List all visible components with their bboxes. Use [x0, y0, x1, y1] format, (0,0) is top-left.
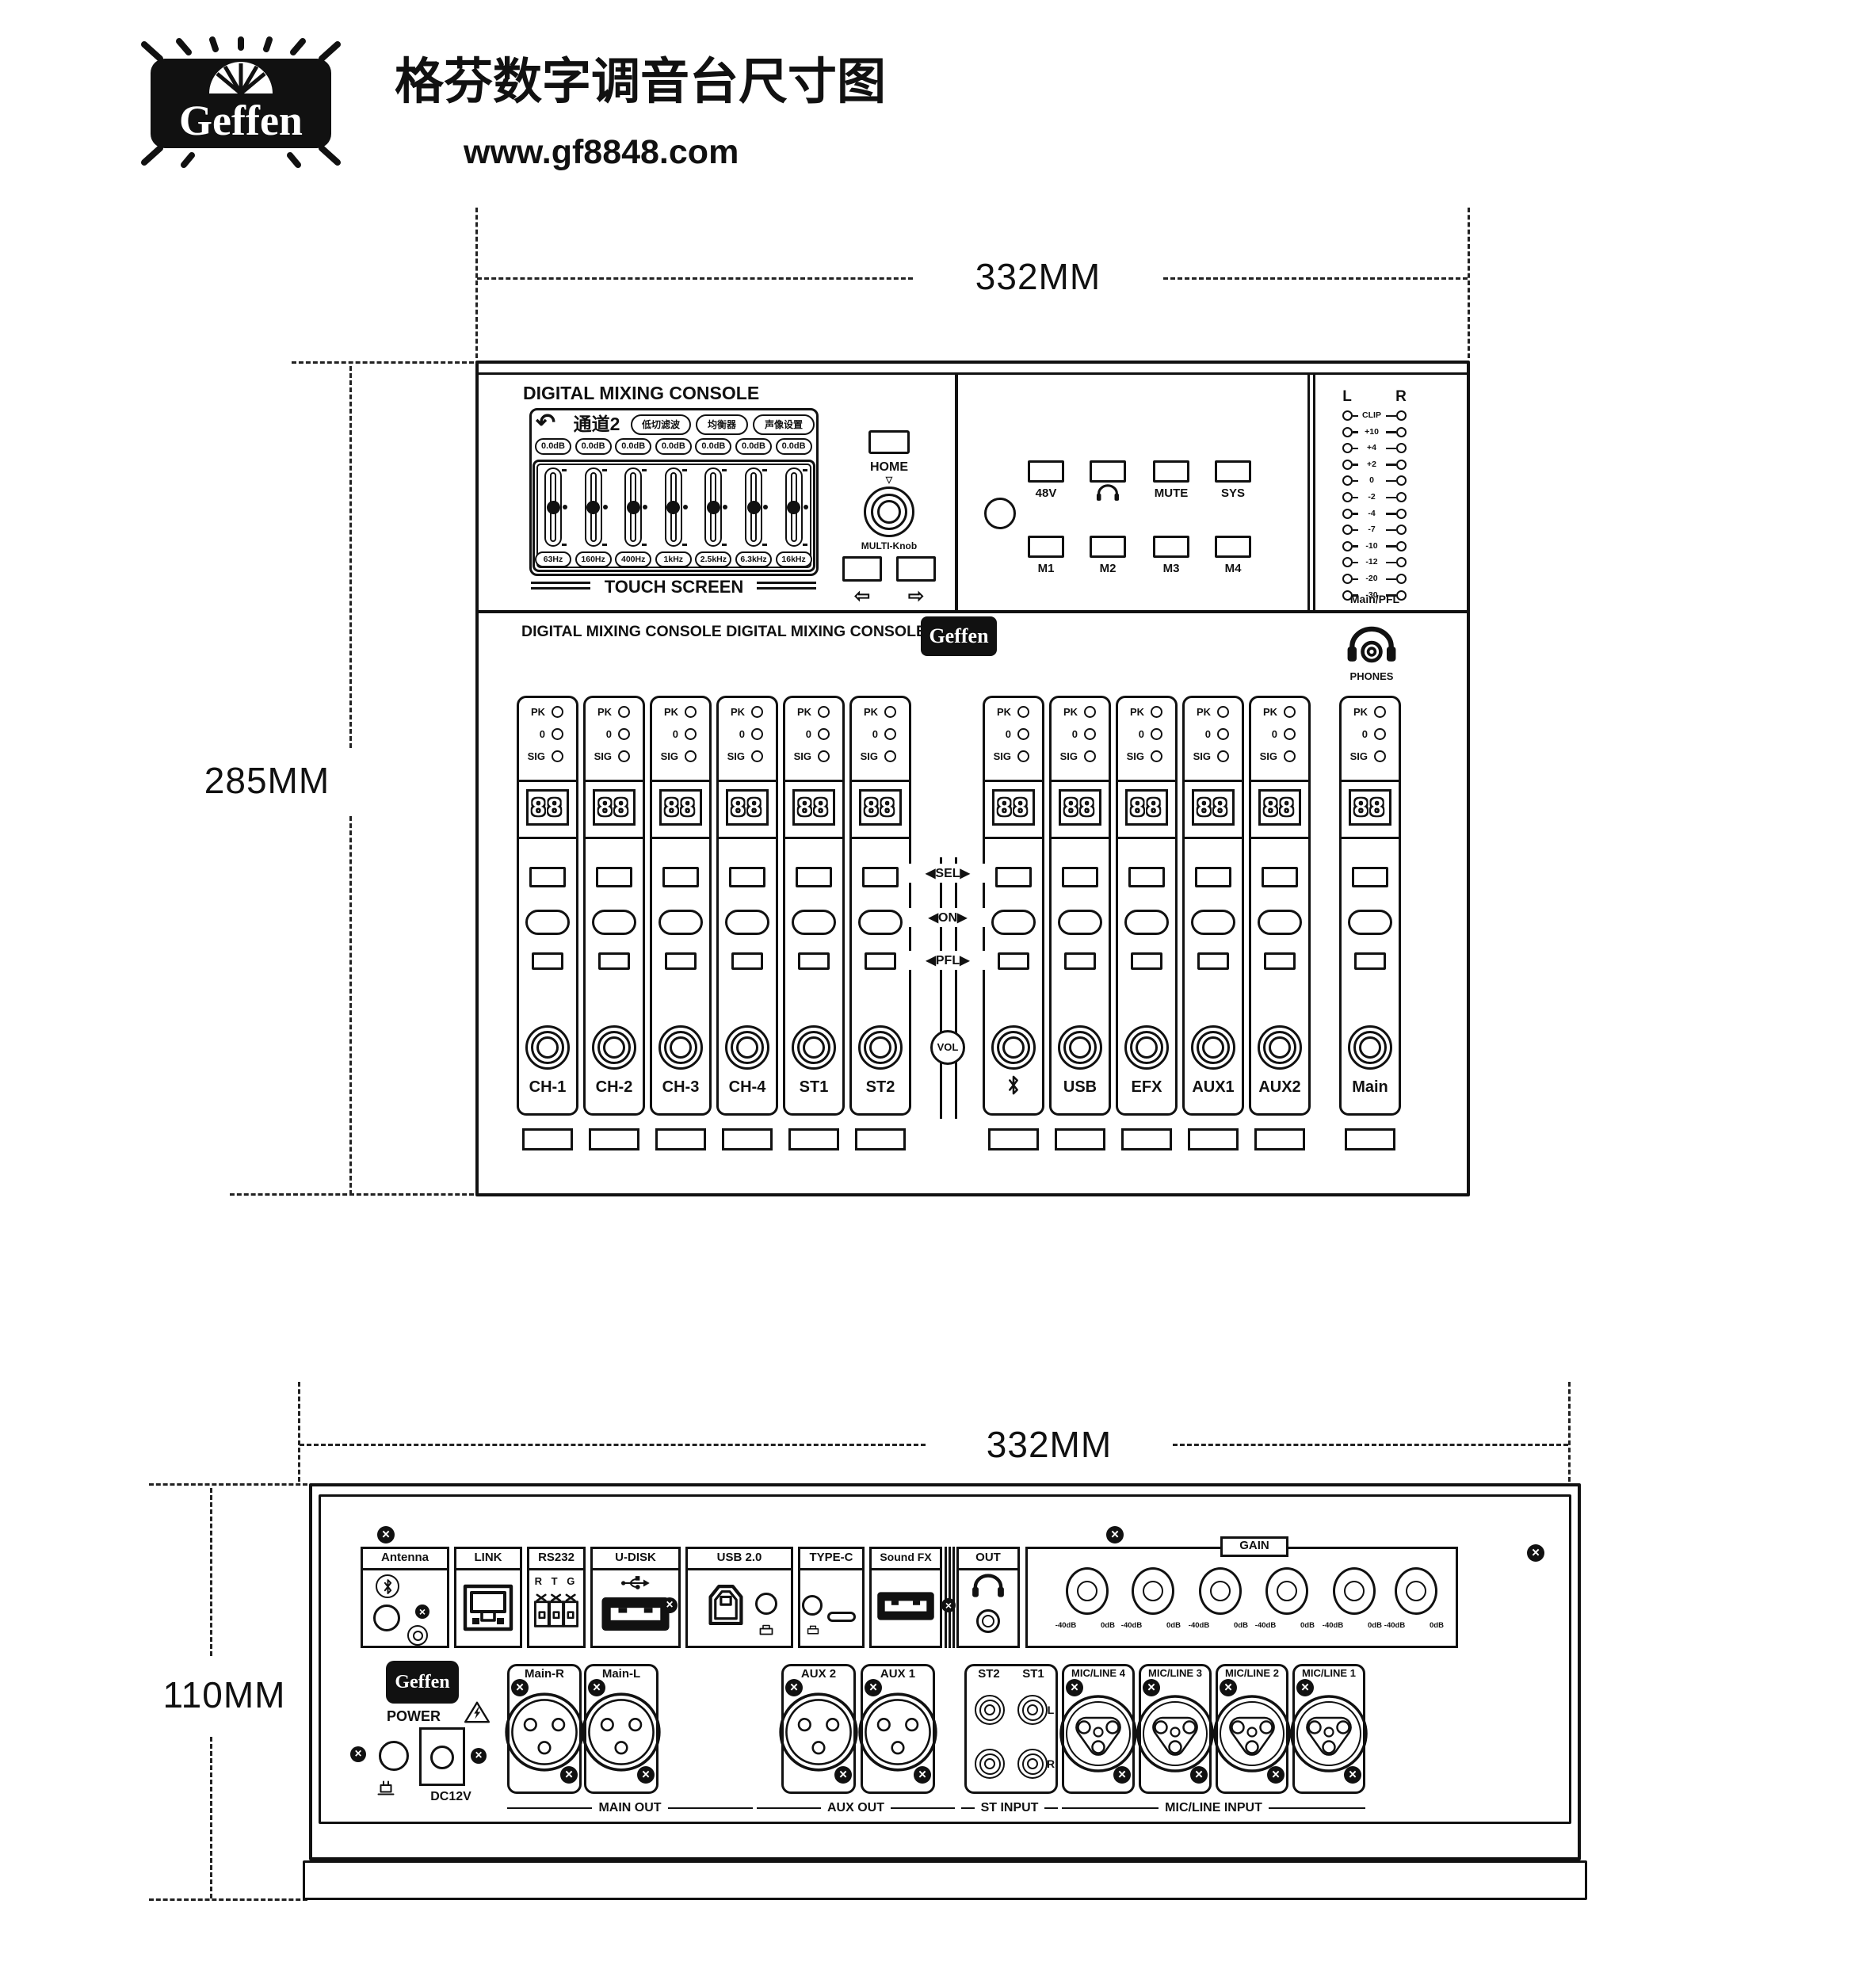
rear-bottom-flange — [303, 1860, 1587, 1900]
multi-knob-label: MULTI-Knob — [849, 540, 929, 551]
eq-freq-badge: 2.5kHz — [695, 551, 731, 567]
fader-slot[interactable] — [1055, 1128, 1105, 1150]
group-line — [668, 1807, 753, 1809]
eq-freq-badge: 160Hz — [575, 551, 612, 567]
vol-knob[interactable] — [736, 1036, 758, 1059]
multi-knob[interactable] — [877, 500, 901, 524]
channel-display-value: 88 — [859, 793, 902, 822]
group-line — [507, 1807, 592, 1809]
led-indicator — [751, 750, 763, 762]
dimension-line — [1163, 277, 1468, 280]
gain-min-label: -40dB — [1380, 1621, 1410, 1630]
function-button-label: M4 — [1209, 562, 1257, 576]
channel-label: AUX1 — [1182, 1078, 1244, 1097]
led-indicator — [685, 706, 697, 718]
screen-tab[interactable]: 声像设置 — [753, 414, 815, 435]
vol-knob[interactable] — [1359, 1036, 1381, 1059]
channel-label: AUX2 — [1249, 1078, 1311, 1097]
sel-button[interactable] — [1062, 867, 1098, 887]
bluetooth-icon — [383, 1578, 393, 1595]
power-button[interactable] — [379, 1741, 409, 1771]
st-jack — [1027, 1704, 1038, 1715]
pfl-button[interactable] — [865, 952, 896, 970]
led-indicator — [751, 728, 763, 740]
line — [1251, 780, 1308, 782]
gain-max-label: 0dB — [1422, 1621, 1451, 1630]
line — [682, 469, 687, 471]
screw-icon: × — [511, 1679, 529, 1696]
channel-label: CH-4 — [716, 1078, 778, 1097]
meter-right-label: R — [1393, 388, 1409, 406]
geffen-logo-small: Geffen — [386, 1661, 459, 1704]
fader-slot[interactable] — [988, 1128, 1039, 1150]
function-button-label: M1 — [1022, 562, 1070, 576]
led-indicator — [1017, 728, 1029, 740]
line — [762, 469, 767, 471]
divider-label-sel: ◀SEL▶ — [908, 864, 987, 883]
line — [479, 372, 1467, 375]
pfl-button[interactable] — [998, 952, 1029, 970]
channel-display-value: 88 — [1125, 793, 1168, 822]
function-button-label: 48V — [1022, 487, 1070, 501]
channel-display-value: 88 — [1258, 793, 1301, 822]
on-button[interactable] — [1058, 910, 1102, 935]
antenna-port — [413, 1631, 423, 1641]
vol-knob[interactable] — [603, 1036, 625, 1059]
line — [562, 469, 567, 471]
dimension-line — [300, 1444, 926, 1446]
on-button[interactable] — [1258, 910, 1302, 935]
screw-icon: × — [1106, 1526, 1124, 1543]
led-indicator — [751, 706, 763, 718]
eq-slider-dot — [804, 505, 808, 509]
meter-led — [1342, 557, 1353, 567]
led-indicator — [1017, 750, 1029, 762]
line — [1386, 431, 1396, 433]
on-button[interactable] — [792, 910, 836, 935]
gain-min-label: -40dB — [1184, 1621, 1214, 1630]
function-button[interactable] — [1090, 460, 1126, 483]
fader-slot[interactable] — [655, 1128, 706, 1150]
line — [1342, 780, 1399, 782]
eq-slider-handle[interactable] — [547, 501, 560, 514]
gain-label: GAIN — [1220, 1539, 1288, 1553]
eq-slider-dot — [683, 505, 688, 509]
line — [562, 544, 567, 546]
sel-button[interactable] — [862, 867, 899, 887]
eq-slider-dot — [563, 505, 567, 509]
line — [719, 837, 776, 839]
eq-freq-badge: 400Hz — [615, 551, 651, 567]
sel-button[interactable] — [662, 867, 699, 887]
function-button[interactable] — [1153, 536, 1189, 558]
io-group-label: MIC/LINE INPUT — [1062, 1799, 1365, 1818]
group-label-text: MAIN OUT — [598, 1801, 661, 1815]
meter-led — [1342, 410, 1353, 421]
gain-min-label: -40dB — [1250, 1621, 1281, 1630]
meter-led — [1342, 525, 1353, 535]
channel-display-value: 88 — [726, 793, 769, 822]
fader-slot[interactable] — [855, 1128, 906, 1150]
sel-button[interactable] — [729, 867, 765, 887]
gain-knob[interactable] — [1077, 1581, 1097, 1601]
gain-min-label: -40dB — [1117, 1621, 1147, 1630]
pfl-button[interactable] — [1197, 952, 1229, 970]
vol-knob[interactable] — [803, 1036, 825, 1059]
led-indicator — [1151, 728, 1162, 740]
fader-slot[interactable] — [1121, 1128, 1172, 1150]
pfl-button[interactable] — [665, 952, 697, 970]
eq-freq-badge: 63Hz — [535, 551, 571, 567]
dim-top-width: 332MM — [919, 255, 1157, 298]
port-section-label: LINK — [454, 1547, 522, 1570]
headphone-icon — [1342, 626, 1401, 667]
device-icon — [807, 1624, 819, 1634]
led-label: SIG — [1250, 750, 1277, 763]
gain-knob[interactable] — [1344, 1581, 1365, 1601]
led-label: 0 — [651, 728, 678, 741]
led-indicator — [1084, 750, 1096, 762]
led-indicator — [818, 706, 830, 718]
sel-button[interactable] — [529, 867, 566, 887]
usb-icon — [619, 1575, 652, 1591]
antenna-jack — [373, 1605, 400, 1631]
meter-led — [1396, 574, 1407, 584]
screw-icon: × — [1527, 1544, 1544, 1562]
pfl-button[interactable] — [532, 952, 563, 970]
line — [1386, 578, 1396, 581]
port-section-label: USB 2.0 — [685, 1547, 793, 1570]
dimension-line — [1468, 208, 1470, 358]
screw-icon: × — [834, 1766, 852, 1784]
vol-knob[interactable] — [1202, 1036, 1224, 1059]
channel-display-value: 88 — [1192, 793, 1235, 822]
dimension-line — [477, 277, 913, 280]
led-label: 0 — [585, 728, 612, 741]
vol-knob[interactable] — [1002, 1036, 1025, 1059]
eq-gain-badge: 0.0dB — [735, 438, 772, 455]
terminal-block — [533, 1591, 579, 1631]
line — [955, 372, 958, 610]
function-button-label: M2 — [1084, 562, 1132, 576]
group-line — [891, 1807, 955, 1809]
screw-icon: × — [415, 1605, 429, 1619]
eq-slider-handle[interactable] — [787, 501, 800, 514]
dimension-line — [230, 1193, 474, 1196]
led-label: 0 — [718, 728, 745, 741]
vol-knob[interactable] — [670, 1036, 692, 1059]
screw-icon: × — [865, 1679, 882, 1696]
sel-button[interactable] — [995, 867, 1032, 887]
vol-knob[interactable] — [1069, 1036, 1091, 1059]
screw-icon: × — [1143, 1679, 1160, 1696]
screw-icon: × — [662, 1597, 678, 1613]
led-indicator — [1284, 706, 1296, 718]
xlr-connector — [503, 1691, 586, 1773]
meter-led — [1396, 541, 1407, 551]
mic-line-label: MIC/LINE 4 — [1062, 1667, 1135, 1680]
on-button[interactable] — [1348, 910, 1392, 935]
screen-tab[interactable]: 低切滤波 — [631, 414, 691, 435]
nav-right-button[interactable] — [896, 556, 936, 582]
sel-button[interactable] — [596, 867, 632, 887]
gain-knob[interactable] — [1143, 1581, 1163, 1601]
led-label: PK — [651, 706, 678, 719]
port-section-label: RS232 — [527, 1547, 586, 1570]
touch-screen-caption-line — [757, 582, 816, 590]
line — [602, 469, 607, 471]
gain-knob[interactable] — [1406, 1581, 1426, 1601]
dimension-line — [210, 1488, 212, 1656]
pfl-button[interactable] — [1264, 952, 1296, 970]
function-button-label: MUTE — [1147, 487, 1195, 501]
led-indicator — [1217, 750, 1229, 762]
eq-slider-handle[interactable] — [707, 501, 720, 514]
on-button[interactable] — [725, 910, 769, 935]
combo-connector — [1059, 1694, 1138, 1773]
section-title: DIGITAL MIXING CONSOLE — [523, 383, 856, 405]
led-indicator — [1151, 706, 1162, 718]
meter-scale-label: +2 — [1357, 460, 1386, 470]
led-label: SIG — [585, 750, 612, 763]
screen-tab[interactable]: 均衡器 — [696, 414, 748, 435]
line — [945, 1547, 947, 1648]
led-indicator — [552, 706, 563, 718]
eq-gain-badge: 0.0dB — [535, 438, 571, 455]
screw-icon: × — [1066, 1679, 1083, 1696]
line — [1386, 448, 1396, 450]
led-indicator — [618, 750, 630, 762]
dimension-line — [349, 816, 352, 1195]
pfl-button[interactable] — [1131, 952, 1162, 970]
led-label: SIG — [784, 750, 811, 763]
pfl-button[interactable] — [731, 952, 763, 970]
dimension-line — [298, 1382, 300, 1482]
eq-slider-handle[interactable] — [747, 501, 761, 514]
meter-scale-label: CLIP — [1357, 410, 1386, 421]
usb-a-port — [876, 1588, 935, 1624]
geffen-logo-small: Geffen — [921, 616, 997, 656]
io-group-label: AUX OUT — [757, 1799, 955, 1818]
dc-jack-hole — [430, 1746, 454, 1769]
dimension-diagram-page: Geffen 格芬数字调音台尺寸图 www.gf8848.com 332MM 2… — [0, 0, 1859, 1988]
line — [762, 544, 767, 546]
line — [955, 857, 957, 1119]
line — [519, 780, 576, 782]
on-button[interactable] — [858, 910, 903, 935]
led-indicator — [818, 750, 830, 762]
led-label: 0 — [851, 728, 878, 741]
led-label: PK — [1117, 706, 1144, 719]
line — [985, 837, 1042, 839]
line — [642, 544, 647, 546]
gain-knob[interactable] — [1210, 1581, 1231, 1601]
typec-hole — [802, 1595, 823, 1616]
xlr-connector — [777, 1691, 860, 1773]
eq-gain-badge: 0.0dB — [655, 438, 692, 455]
line — [852, 780, 909, 782]
on-button[interactable] — [525, 910, 570, 935]
round-button[interactable] — [984, 498, 1016, 529]
fader-slot[interactable] — [1188, 1128, 1239, 1150]
screw-icon: × — [637, 1766, 655, 1784]
led-label: SIG — [1184, 750, 1211, 763]
screw-icon: × — [560, 1766, 578, 1784]
vol-knob[interactable] — [536, 1036, 559, 1059]
line — [1342, 837, 1399, 839]
touch-screen-caption-line — [531, 582, 590, 590]
port-section-label: OUT — [956, 1547, 1020, 1570]
line — [803, 544, 807, 546]
pfl-button[interactable] — [798, 952, 830, 970]
ethernet-port — [463, 1583, 513, 1632]
fader-slot[interactable] — [788, 1128, 839, 1150]
led-indicator — [884, 706, 896, 718]
led-indicator — [1284, 750, 1296, 762]
channel-label: CH-2 — [583, 1078, 645, 1097]
channel-label: ST2 — [849, 1078, 911, 1097]
st-row-label: R — [1044, 1757, 1057, 1771]
meter-scale-label: +4 — [1357, 443, 1386, 453]
port-section-label: Sound FX — [869, 1547, 942, 1570]
channel-label: ST1 — [783, 1078, 845, 1097]
on-button[interactable] — [658, 910, 703, 935]
line — [949, 1547, 951, 1648]
fader-slot[interactable] — [1345, 1128, 1395, 1150]
fader-slot[interactable] — [522, 1128, 573, 1150]
home-button[interactable] — [868, 430, 910, 454]
dimension-line — [475, 208, 478, 358]
eq-gain-badge: 0.0dB — [776, 438, 812, 455]
meter-caption: Main/PFL — [1339, 593, 1410, 606]
line — [682, 544, 687, 546]
line — [852, 837, 909, 839]
screw-icon: × — [1267, 1766, 1285, 1784]
function-button[interactable] — [1215, 460, 1251, 483]
on-button[interactable] — [592, 910, 636, 935]
led-indicator — [1217, 728, 1229, 740]
xlr-connector — [580, 1691, 662, 1773]
screw-icon: × — [1190, 1766, 1208, 1784]
pfl-button[interactable] — [598, 952, 630, 970]
vol-knob[interactable] — [1136, 1036, 1158, 1059]
pfl-button[interactable] — [1354, 952, 1386, 970]
sel-button[interactable] — [1352, 867, 1388, 887]
led-label: PK — [984, 706, 1011, 719]
pfl-button[interactable] — [1064, 952, 1096, 970]
meter-left-label: L — [1339, 388, 1355, 406]
mic-line-label: MIC/LINE 1 — [1292, 1667, 1365, 1680]
function-button[interactable] — [1153, 460, 1189, 483]
sel-button[interactable] — [1262, 867, 1298, 887]
channel-display-value: 88 — [1349, 793, 1391, 822]
usb-a-port — [601, 1596, 670, 1632]
eq-gain-badge: 0.0dB — [575, 438, 612, 455]
led-indicator — [618, 706, 630, 718]
line — [1052, 780, 1109, 782]
led-label: PK — [718, 706, 745, 719]
screw-icon: × — [1296, 1679, 1314, 1696]
screen-title: 通道2 — [567, 414, 626, 436]
led-label: PK — [851, 706, 878, 719]
nav-left-button[interactable] — [842, 556, 882, 582]
sel-button[interactable] — [1128, 867, 1165, 887]
line — [722, 469, 727, 471]
meter-scale-label: -2 — [1357, 492, 1386, 502]
dc-label: DC12V — [423, 1789, 479, 1804]
meter-scale-label: -4 — [1357, 509, 1386, 519]
function-button[interactable] — [1090, 536, 1126, 558]
dimension-line — [349, 366, 352, 748]
gain-knob[interactable] — [1277, 1581, 1297, 1601]
line — [1307, 372, 1310, 610]
on-button[interactable] — [1124, 910, 1169, 935]
vol-knob[interactable] — [869, 1036, 891, 1059]
plug-icon — [377, 1780, 395, 1795]
led-label: SIG — [518, 750, 545, 763]
line — [940, 857, 942, 1119]
sel-button[interactable] — [796, 867, 832, 887]
gain-min-label: -40dB — [1051, 1621, 1081, 1630]
led-indicator — [685, 728, 697, 740]
st-col-label: ST1 — [1012, 1667, 1055, 1681]
meter-led — [1342, 443, 1353, 453]
back-button[interactable]: ↶ — [536, 409, 555, 437]
fader-slot[interactable] — [1254, 1128, 1305, 1150]
meter-led — [1342, 541, 1353, 551]
dimension-line — [149, 1483, 307, 1486]
vol-knob[interactable] — [1269, 1036, 1291, 1059]
dimension-line — [210, 1737, 212, 1898]
eq-freq-badge: 6.3kHz — [735, 551, 772, 567]
meter-scale-label: -20 — [1357, 574, 1386, 584]
on-button[interactable] — [1191, 910, 1235, 935]
nav-right-arrow: ⇨ — [902, 585, 930, 608]
on-button[interactable] — [991, 910, 1036, 935]
fader-slot[interactable] — [722, 1128, 773, 1150]
headphone-icon — [1094, 484, 1121, 503]
meter-led — [1396, 475, 1407, 486]
channel-display-value: 88 — [526, 793, 569, 822]
function-button[interactable] — [1028, 536, 1064, 558]
touch-screen-caption: TOUCH SCREEN — [593, 577, 755, 597]
fader-slot[interactable] — [589, 1128, 639, 1150]
function-button[interactable] — [1215, 536, 1251, 558]
led-indicator — [685, 750, 697, 762]
function-button[interactable] — [1028, 460, 1064, 483]
eq-slider-handle[interactable] — [666, 501, 680, 514]
sel-button[interactable] — [1195, 867, 1231, 887]
led-label: SIG — [851, 750, 878, 763]
screw-icon: × — [377, 1526, 395, 1543]
meter-led — [1342, 492, 1353, 502]
led-label: SIG — [1341, 750, 1368, 763]
eq-gain-badge: 0.0dB — [695, 438, 731, 455]
led-indicator — [552, 750, 563, 762]
led-indicator — [1084, 706, 1096, 718]
line — [985, 780, 1042, 782]
eq-slider-handle[interactable] — [627, 501, 640, 514]
line — [1386, 562, 1396, 564]
line — [719, 780, 776, 782]
led-indicator — [1017, 706, 1029, 718]
led-label: PK — [518, 706, 545, 719]
led-indicator — [1151, 750, 1162, 762]
eq-slider-handle[interactable] — [586, 501, 600, 514]
vol-indicator-label: VOL — [930, 1041, 965, 1054]
dim-top-height: 285MM — [184, 759, 350, 802]
screw-icon: × — [1344, 1766, 1361, 1784]
